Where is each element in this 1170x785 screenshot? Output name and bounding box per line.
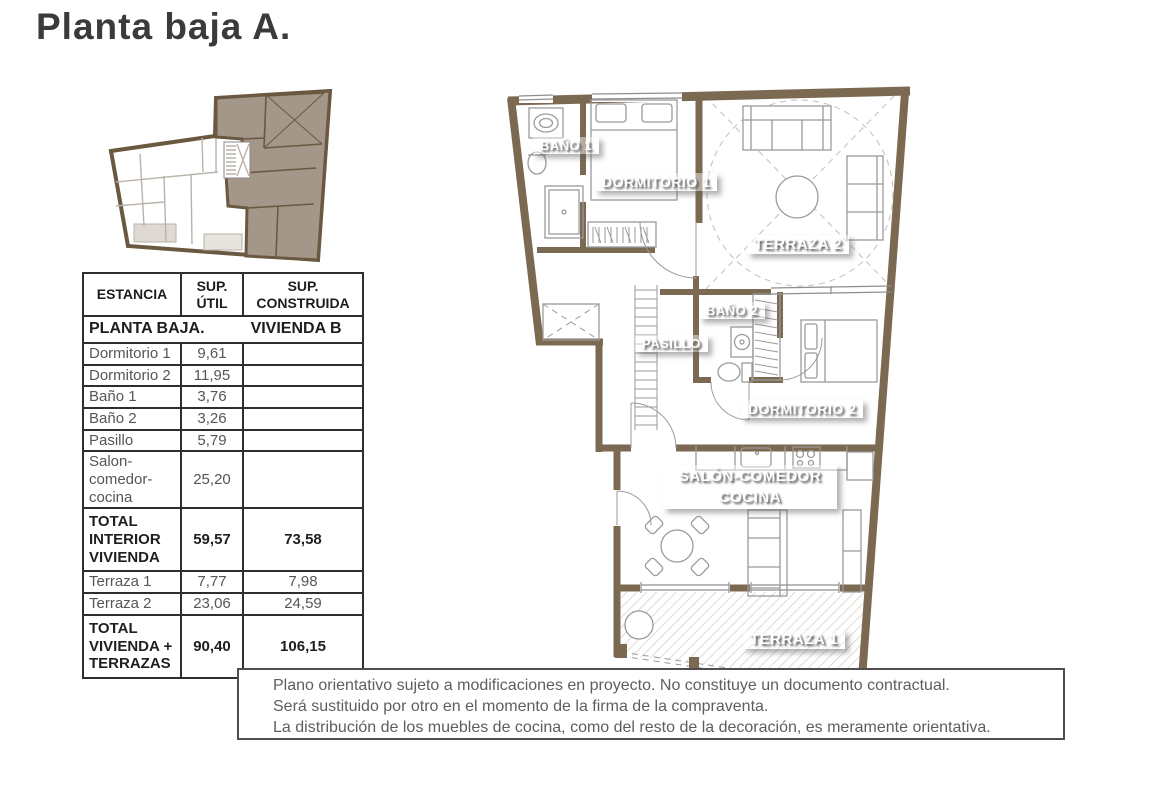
dining-table — [644, 515, 710, 577]
dormitorio2-bed — [801, 320, 877, 382]
dormitorio1-wardrobe — [588, 222, 656, 247]
room-name: Dormitorio 1 — [83, 343, 181, 365]
bano2-fixtures — [718, 327, 753, 382]
area-table-body: Dormitorio 19,61Dormitorio 211,95Baño 13… — [83, 343, 363, 678]
sup-construida-value — [243, 365, 363, 387]
col-header-sup-construida: SUP. CONSTRUIDA — [243, 273, 363, 316]
sup-util-value: 9,61 — [181, 343, 243, 365]
key-plan-left-wing — [116, 136, 242, 250]
room-name: Salon-comedor-cocina — [83, 451, 181, 508]
disclaimer-box: Plano orientativo sujeto a modificacione… — [237, 668, 1065, 740]
section-left: PLANTA BAJA. — [89, 320, 205, 339]
table-row: Salon-comedor-cocina25,20 — [83, 451, 363, 508]
table-row: Baño 13,76 — [83, 386, 363, 408]
room-name: TOTAL INTERIOR VIVIENDA — [83, 508, 181, 571]
sup-construida-value — [243, 430, 363, 452]
sup-construida-value — [243, 386, 363, 408]
disclaimer-line-1: Plano orientativo sujeto a modificacione… — [273, 675, 1055, 696]
col-header-estancia: ESTANCIA — [83, 273, 181, 316]
section-cell: PLANTA BAJA. VIVIENDA B — [83, 316, 363, 343]
sup-util-value: 59,57 — [181, 508, 243, 571]
table-row: Dormitorio 19,61 — [83, 343, 363, 365]
col-header-sup-util: SUP. ÚTIL — [181, 273, 243, 316]
sup-util-value: 3,76 — [181, 386, 243, 408]
salon-sofa — [748, 510, 787, 596]
building-key-plan — [106, 86, 346, 273]
table-row: Dormitorio 211,95 — [83, 365, 363, 387]
disclaimer-line-2: Será sustituido por otro en el momento d… — [273, 696, 1055, 717]
bano1-fixtures — [528, 108, 583, 238]
section-right: VIVIENDA B — [251, 320, 342, 339]
salon-label-line2: COCINA — [719, 489, 781, 506]
sup-util-value: 25,20 — [181, 451, 243, 508]
sup-util-value: 90,40 — [181, 615, 243, 678]
sup-construida-value: 24,59 — [243, 593, 363, 615]
sup-util-value: 7,77 — [181, 571, 243, 593]
table-header-row: ESTANCIA SUP. ÚTIL SUP. CONSTRUIDA — [83, 273, 363, 316]
room-label-dormitorio2: DORMITORIO 2 — [741, 400, 863, 418]
sup-construida-value — [243, 451, 363, 508]
disclaimer-line-3: La distribución de los muebles de cocina… — [273, 717, 1055, 738]
terraza2-furniture — [743, 106, 883, 240]
storage-closet — [543, 304, 599, 340]
table-row: Pasillo5,79 — [83, 430, 363, 452]
room-name: Terraza 1 — [83, 571, 181, 593]
sup-util-value: 23,06 — [181, 593, 243, 615]
table-row: Baño 23,26 — [83, 408, 363, 430]
room-name: Baño 2 — [83, 408, 181, 430]
table-row: Terraza 223,0624,59 — [83, 593, 363, 615]
terraza2-slider — [771, 286, 892, 294]
entry-door — [617, 491, 651, 525]
sup-util-value: 5,79 — [181, 430, 243, 452]
sup-util-value: 3,26 — [181, 408, 243, 430]
room-label-pasillo: PASILLO — [635, 335, 708, 352]
areas-table: ESTANCIA SUP. ÚTIL SUP. CONSTRUIDA PLANT… — [82, 272, 364, 679]
key-plan-drawing — [106, 86, 346, 268]
table-section-row: PLANTA BAJA. VIVIENDA B — [83, 316, 363, 343]
room-label-terraza2: TERRAZA 2 — [747, 235, 849, 254]
terraza1-table — [625, 611, 653, 639]
sup-construida-value — [243, 343, 363, 365]
room-name: Baño 1 — [83, 386, 181, 408]
table-row: TOTAL INTERIOR VIVIENDA59,5773,58 — [83, 508, 363, 571]
page-title: Planta baja A. — [36, 6, 291, 48]
floor-plan: BAÑO 1 DORMITORIO 1 TERRAZA 2 BAÑO 2 PAS… — [495, 80, 930, 702]
sup-construida-value: 73,58 — [243, 508, 363, 571]
sup-util-value: 11,95 — [181, 365, 243, 387]
room-label-terraza1: TERRAZA 1 — [743, 630, 845, 649]
key-plan-stair-core — [224, 142, 250, 178]
room-label-bano1: BAÑO 1 — [533, 137, 599, 154]
room-name: TOTAL VIVIENDA + TERRAZAS — [83, 615, 181, 678]
room-label-bano2: BAÑO 2 — [699, 302, 765, 319]
room-name: Terraza 2 — [83, 593, 181, 615]
sup-construida-value: 7,98 — [243, 571, 363, 593]
pasillo-stairs — [635, 285, 657, 430]
room-label-salon: SALÓN-COMEDOR COCINA — [663, 465, 837, 509]
room-label-dormitorio1: DORMITORIO 1 — [595, 173, 717, 191]
sup-construida-value — [243, 408, 363, 430]
room-name: Dormitorio 2 — [83, 365, 181, 387]
salon-sideboard — [843, 510, 861, 592]
room-name: Pasillo — [83, 430, 181, 452]
bano1-window — [519, 93, 553, 103]
table-row: Terraza 17,777,98 — [83, 571, 363, 593]
salon-label-line1: SALÓN-COMEDOR — [679, 468, 821, 485]
